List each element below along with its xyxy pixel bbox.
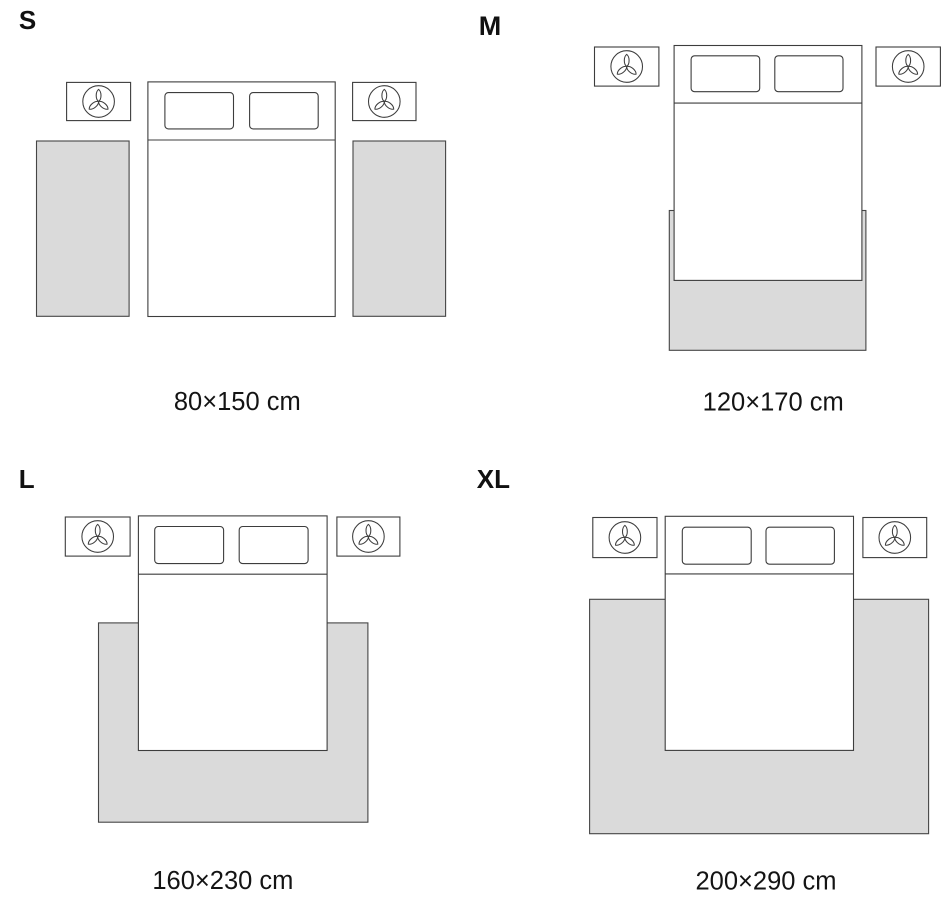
svg-text:160×230 cm: 160×230 cm <box>152 867 293 895</box>
svg-text:80×150 cm: 80×150 cm <box>174 388 301 416</box>
svg-text:L: L <box>19 464 35 494</box>
svg-text:200×290 cm: 200×290 cm <box>695 867 836 895</box>
svg-text:S: S <box>19 5 36 35</box>
svg-text:M: M <box>479 11 502 41</box>
svg-text:120×170 cm: 120×170 cm <box>703 389 844 417</box>
svg-text:XL: XL <box>477 464 510 494</box>
